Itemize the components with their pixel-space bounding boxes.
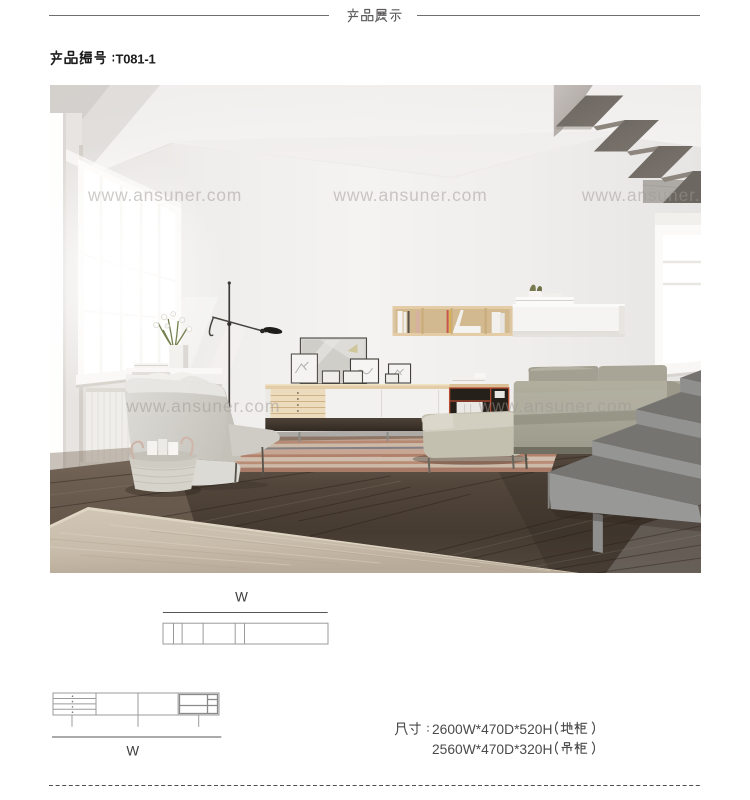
svg-text:www.ansuner.com: www.ansuner.com <box>581 185 701 205</box>
svg-text:www.ansuner.com: www.ansuner.com <box>125 396 280 416</box>
svg-text:www.ansuner.com: www.ansuner.com <box>87 185 242 205</box>
svg-text:T081-1: T081-1 <box>116 51 156 66</box>
svg-text:www.ansuner.com: www.ansuner.com <box>478 396 633 416</box>
svg-text:W: W <box>126 744 139 759</box>
svg-text:W: W <box>235 590 248 605</box>
svg-text:www.ansuner.com: www.ansuner.com <box>332 185 487 205</box>
svg-text:2600W*470D*520H: 2600W*470D*520H <box>432 722 552 737</box>
svg-text:2560W*470D*320H: 2560W*470D*320H <box>432 742 552 757</box>
